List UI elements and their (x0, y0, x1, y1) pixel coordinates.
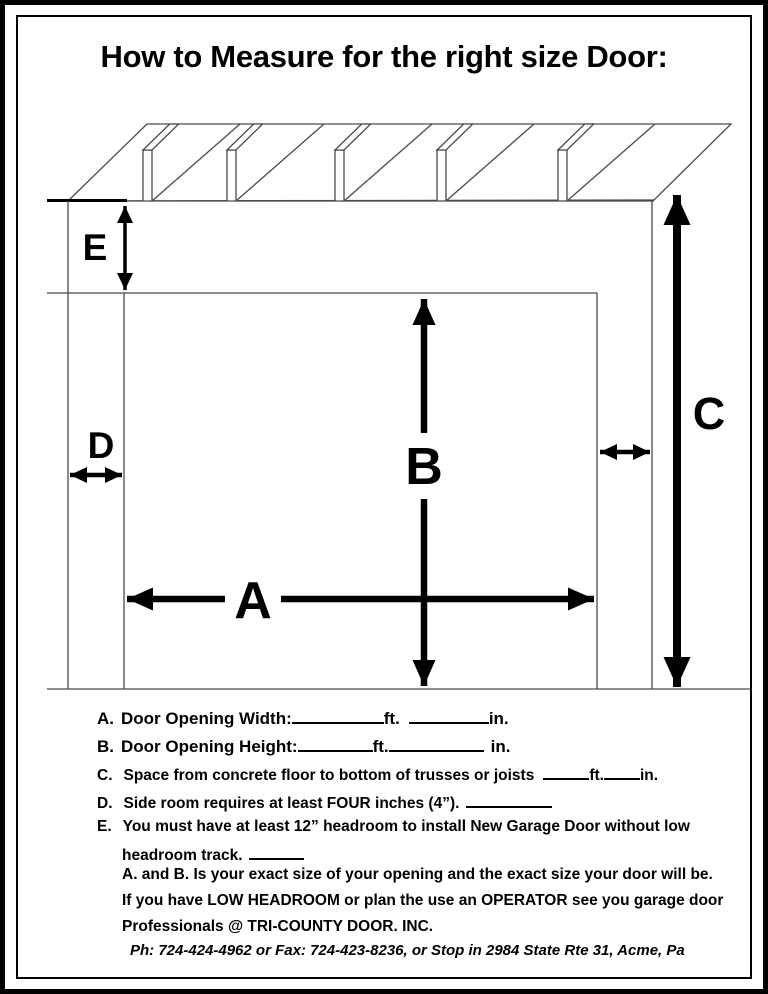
item-c-ft-blank (543, 764, 589, 780)
item-c-in-unit: in. (640, 767, 658, 785)
item-b-ft-unit: ft. (373, 737, 389, 757)
item-a-label: A. (97, 709, 114, 729)
item-d-text: Side room requires at least FOUR inches … (124, 795, 460, 813)
instruction-line-c: C. Space from concrete floor to bottom o… (97, 764, 658, 785)
item-e-text-line2: headroom track. (122, 847, 243, 865)
note-line-3: Professionals @ TRI-COUNTY DOOR. INC. (122, 918, 433, 936)
item-e-label: E. (97, 818, 112, 836)
contact-text: Ph: 724-424-4962 or Fax: 724-423-8236, o… (130, 942, 685, 959)
item-a-text: Door Opening Width: (121, 709, 292, 729)
item-a-ft-unit: ft. (384, 709, 400, 729)
item-a-in-blank (409, 707, 489, 724)
item-a-ft-blank (292, 707, 384, 724)
item-b-label: B. (97, 737, 114, 757)
instruction-line-e2: headroom track. (122, 844, 304, 865)
instruction-line-d: D. Side room requires at least FOUR inch… (97, 792, 552, 813)
note1-text: A. and B. Is your exact size of your ope… (122, 866, 713, 884)
item-e-text-line1: You must have at least 12” headroom to i… (123, 818, 690, 836)
instruction-line-b: B. Door Opening Height: ft. in. (97, 735, 510, 757)
item-b-in-blank (389, 735, 484, 752)
note-line-2: If you have LOW HEADROOM or plan the use… (122, 892, 723, 910)
contact-line: Ph: 724-424-4962 or Fax: 724-423-8236, o… (130, 942, 685, 959)
item-c-in-blank (604, 764, 640, 780)
item-d-label: D. (97, 795, 113, 813)
item-c-ft-unit: ft. (589, 767, 604, 785)
instruction-line-e1: E. You must have at least 12” headroom t… (97, 818, 690, 836)
instruction-line-a: A. Door Opening Width: ft. in. (97, 707, 509, 729)
note-line-1: A. and B. Is your exact size of your ope… (122, 866, 713, 884)
flyer-page: How to Measure for the right size Door: (0, 0, 768, 994)
item-c-label: C. (97, 767, 113, 785)
item-a-in-unit: in. (489, 709, 509, 729)
note3-text: Professionals @ TRI-COUNTY DOOR. INC. (122, 918, 433, 936)
item-b-ft-blank (298, 735, 373, 752)
item-b-text: Door Opening Height: (121, 737, 298, 757)
item-c-text: Space from concrete floor to bottom of t… (124, 767, 535, 785)
item-e-blank (249, 844, 304, 860)
item-d-blank (466, 792, 552, 808)
note2-text: If you have LOW HEADROOM or plan the use… (122, 892, 723, 910)
item-b-in-unit: in. (491, 737, 511, 757)
instruction-text-block: A. Door Opening Width: ft. in. B. Door O… (5, 5, 768, 994)
